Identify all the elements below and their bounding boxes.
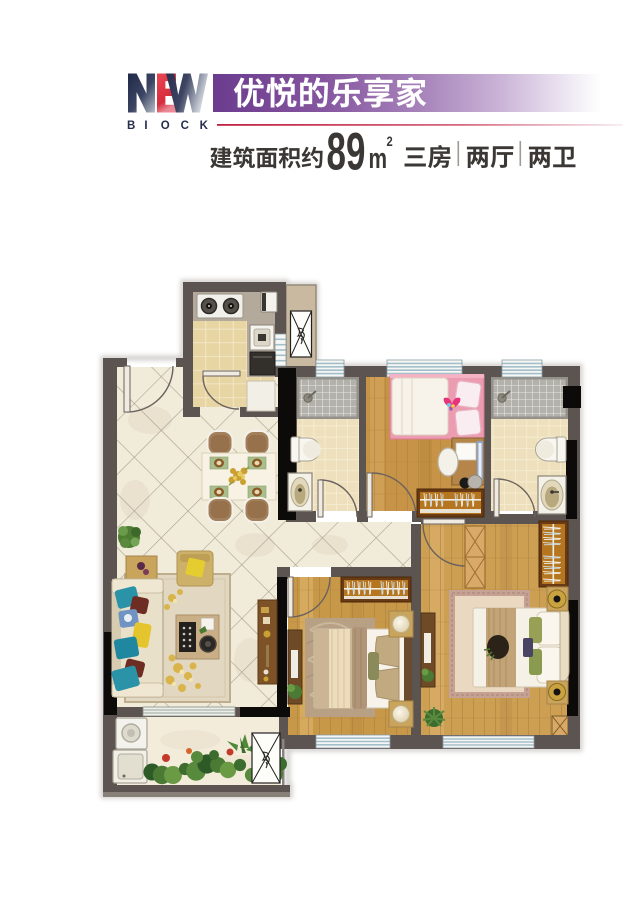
svg-text:O: O <box>161 120 170 132</box>
svg-text:K: K <box>200 120 209 132</box>
svg-text:m: m <box>369 143 388 175</box>
svg-text:I: I <box>144 120 147 132</box>
svg-text:89: 89 <box>327 121 366 181</box>
svg-text:C: C <box>181 120 189 132</box>
svg-text:2: 2 <box>387 134 393 149</box>
svg-text:B: B <box>127 120 135 132</box>
